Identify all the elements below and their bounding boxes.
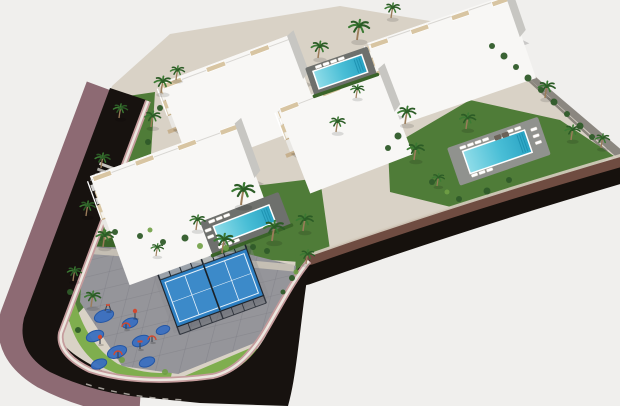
shrub <box>162 369 168 375</box>
bush <box>281 290 286 295</box>
bush <box>513 64 519 70</box>
bush <box>525 75 532 82</box>
bush <box>112 229 118 235</box>
bush <box>538 87 544 93</box>
bush <box>429 179 435 185</box>
bush <box>264 248 270 254</box>
aerial-site-render <box>0 0 620 406</box>
bush <box>501 53 508 60</box>
shrub <box>148 228 153 233</box>
bush <box>145 139 151 145</box>
shrub <box>294 270 299 275</box>
bush <box>385 145 391 151</box>
bush <box>182 235 189 242</box>
bush <box>250 244 256 250</box>
bush <box>67 289 73 295</box>
bush <box>484 188 491 195</box>
render-viewport <box>0 0 620 406</box>
bush <box>137 233 143 239</box>
shrub <box>197 243 203 249</box>
bush <box>395 133 402 140</box>
bush <box>506 177 512 183</box>
bush <box>456 196 462 202</box>
shrub <box>119 357 125 363</box>
bush <box>551 99 558 106</box>
shrub <box>445 190 450 195</box>
bush <box>564 111 570 117</box>
bush <box>589 134 595 140</box>
shrub <box>223 245 229 251</box>
bush <box>160 239 166 245</box>
bush <box>489 43 495 49</box>
bush <box>157 105 163 111</box>
bush <box>577 123 584 130</box>
bush <box>75 327 81 333</box>
bush <box>289 275 295 281</box>
